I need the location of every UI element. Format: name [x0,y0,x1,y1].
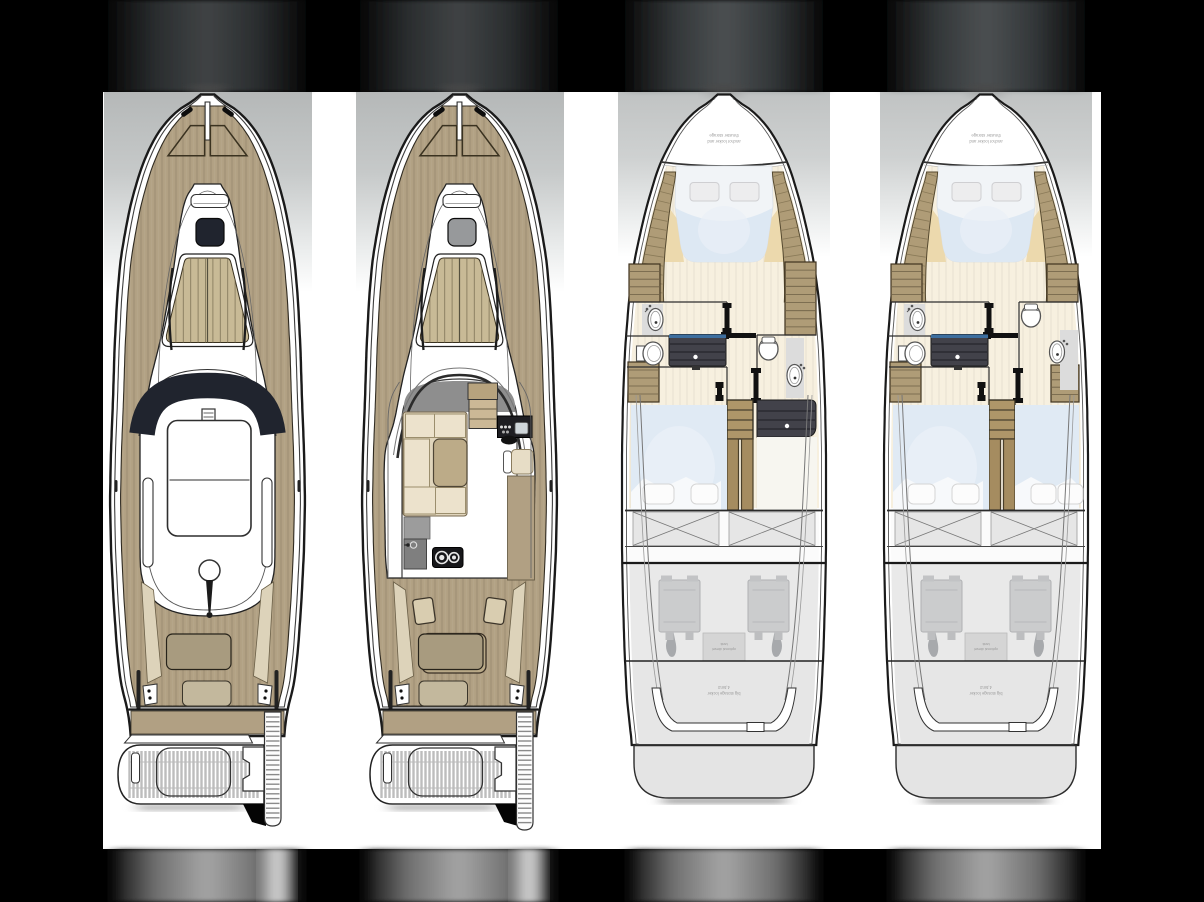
svg-text:tank: tank [982,642,989,646]
svg-text:thruster storage: thruster storage [971,133,1001,138]
svg-text:big storage locker: big storage locker [969,691,1003,696]
svg-text:anchor locker and: anchor locker and [969,139,1003,144]
svg-text:optional diesel: optional diesel [974,647,998,651]
svg-text:anchor locker and: anchor locker and [707,139,741,144]
svg-text:big storage locker: big storage locker [707,691,741,696]
svg-text:tank: tank [720,642,727,646]
svg-text:thruster storage: thruster storage [709,133,739,138]
svg-text:4,5m3: 4,5m3 [980,685,992,690]
svg-text:4,5m3: 4,5m3 [718,685,730,690]
svg-text:optional diesel: optional diesel [712,647,736,651]
